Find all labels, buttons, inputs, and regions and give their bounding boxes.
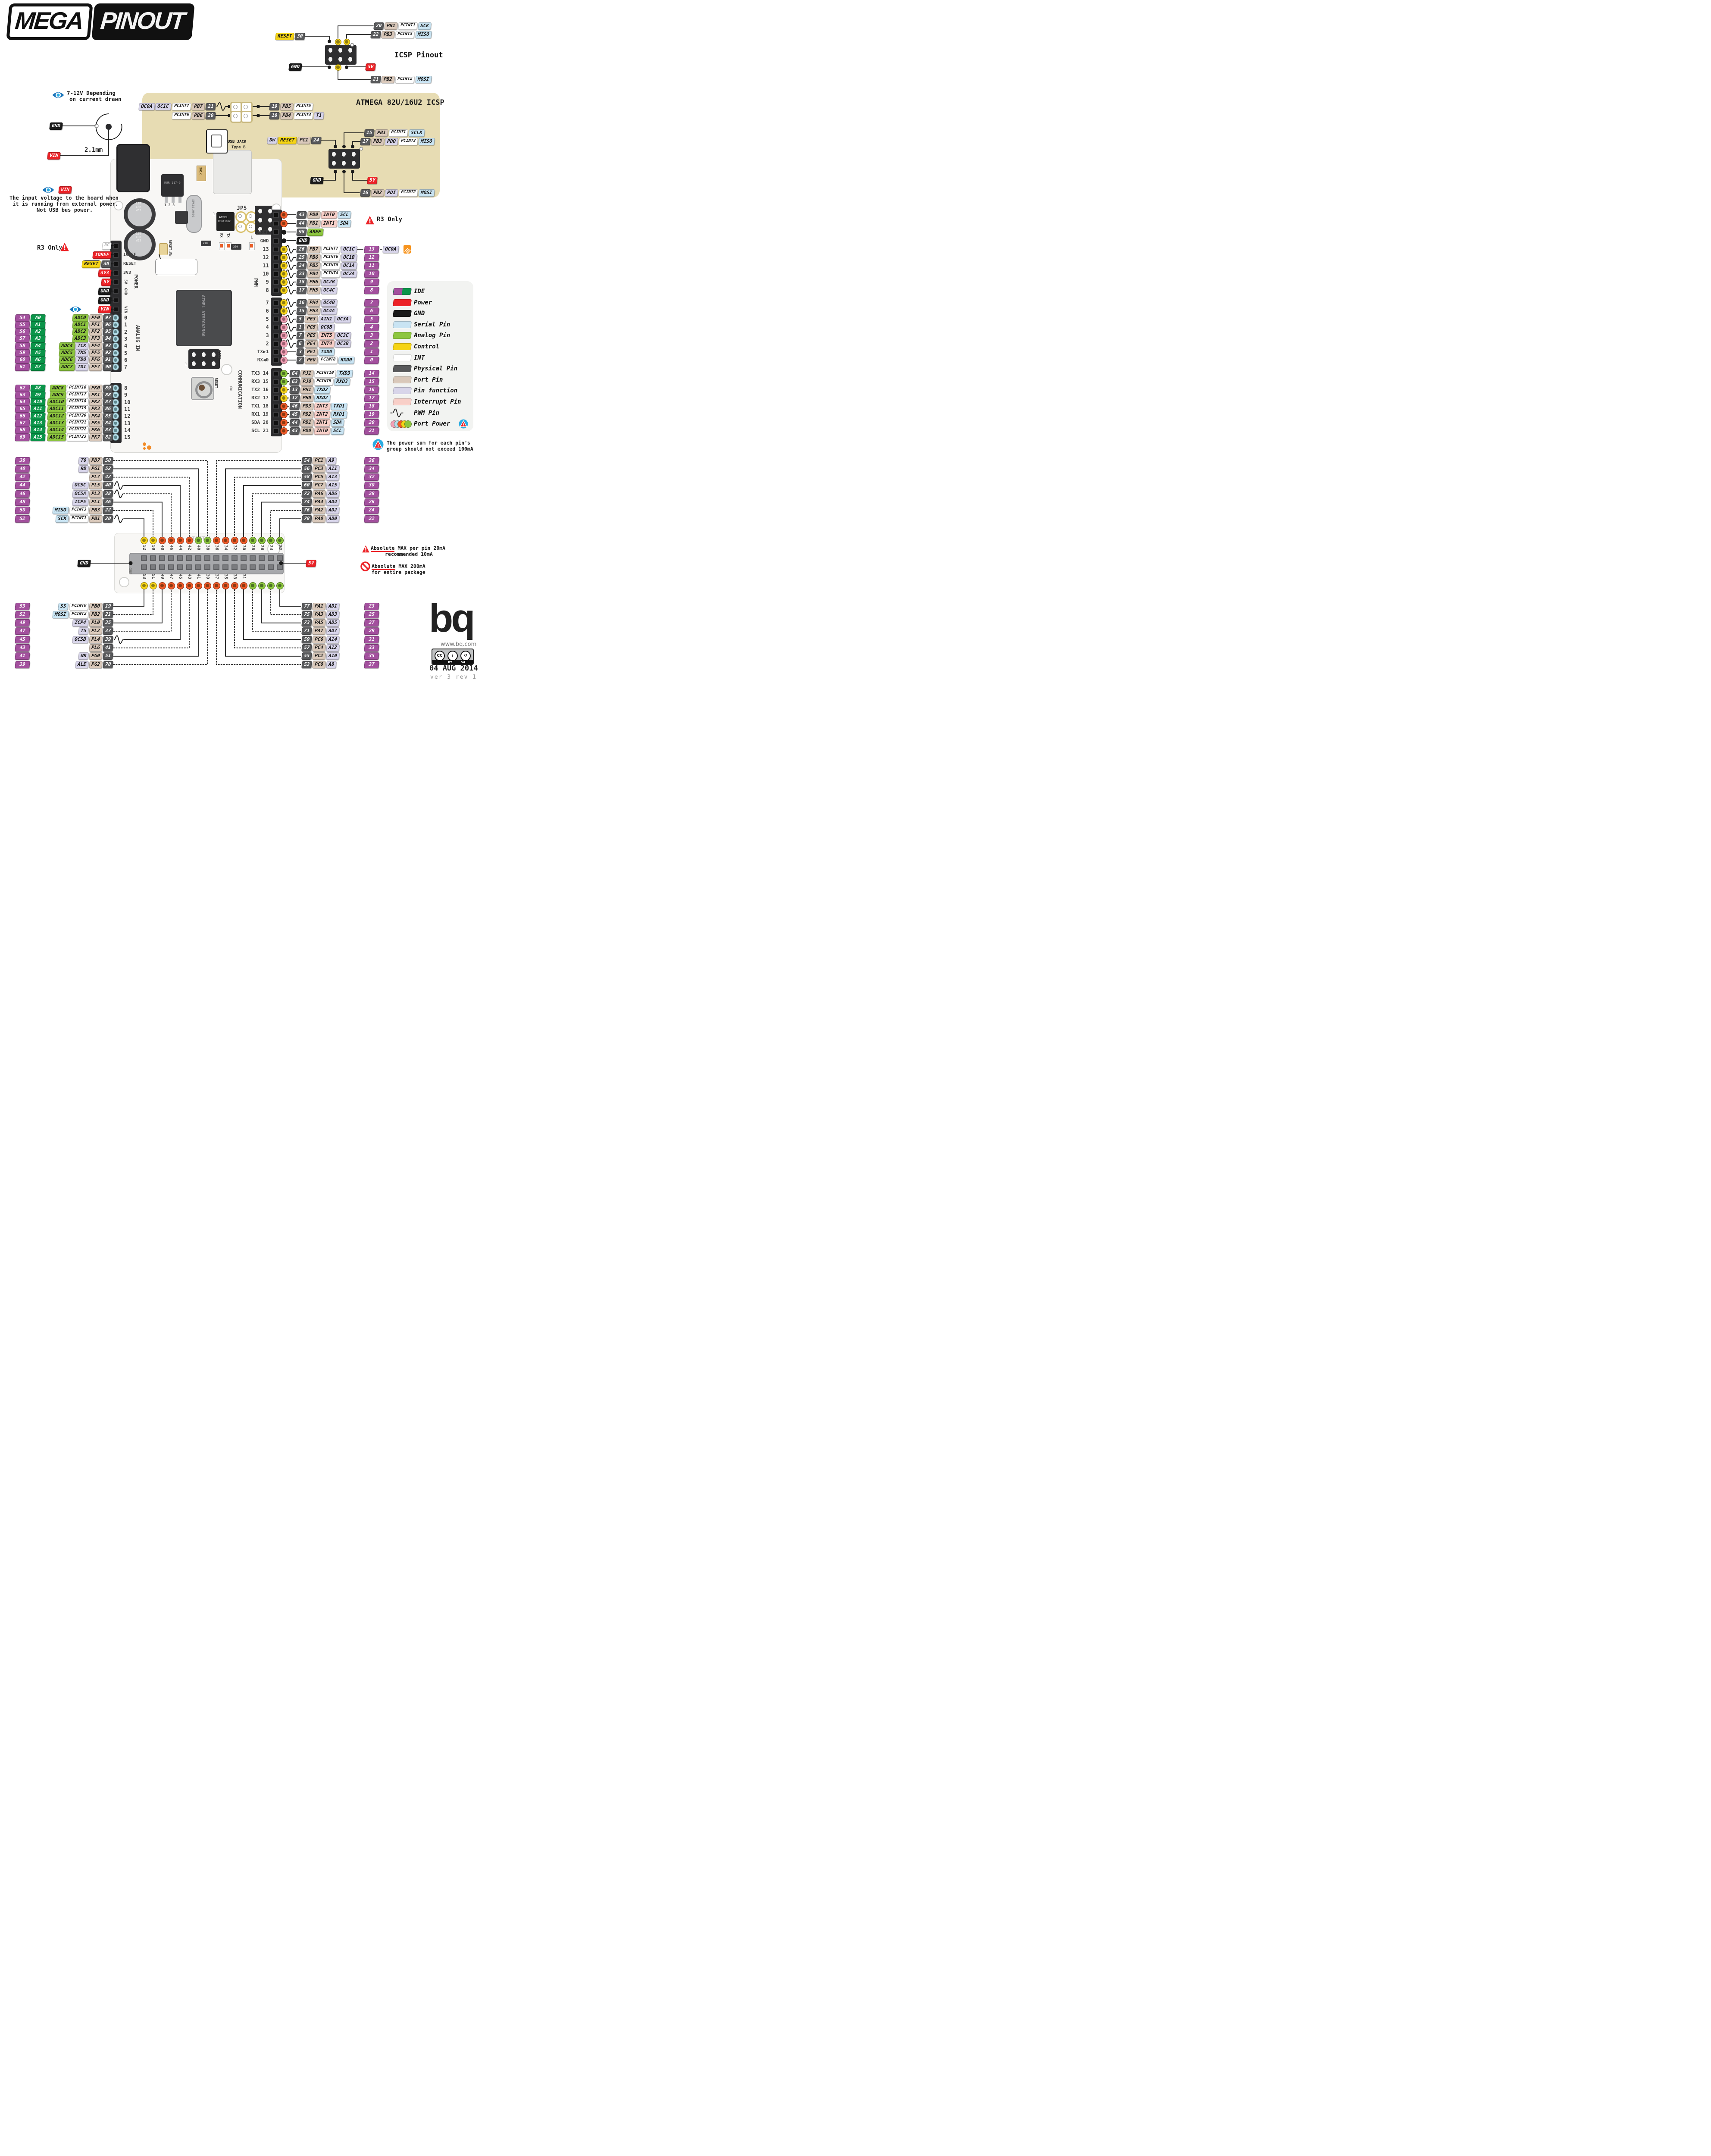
pin-hole-orange xyxy=(240,537,247,544)
chip-pcint4: PCINT4 xyxy=(294,112,313,119)
pin-hole-yellow xyxy=(280,299,288,307)
chip-pb0: PB0 xyxy=(89,603,103,610)
chip-mosi: MOSI xyxy=(52,611,69,618)
chip-5v: 5V xyxy=(367,177,378,184)
pin-hole-core xyxy=(188,584,191,587)
chip-vin: VIN xyxy=(47,152,61,160)
pin-hole-pink xyxy=(280,324,288,331)
chip-a10: A10 xyxy=(30,398,46,406)
ide-number: 53 xyxy=(15,603,30,610)
chip-a2: A2 xyxy=(30,328,46,335)
chip-6: 6 xyxy=(296,340,304,348)
connector-5v-label: 5V xyxy=(306,560,316,567)
ide-number: 18 xyxy=(364,403,379,410)
connector-socket xyxy=(204,555,210,561)
digital-row: 60PC7A15 xyxy=(302,482,339,489)
board-silk: RESET-EN xyxy=(168,240,172,257)
chip-int0: INT0 xyxy=(321,211,337,219)
pin-hole-yellow xyxy=(141,582,148,589)
pin-socket xyxy=(273,412,279,417)
pin-hole-green xyxy=(276,582,284,589)
pin-hole-core xyxy=(114,344,117,348)
chip-pf6: PF6 xyxy=(89,356,103,364)
connector-socket xyxy=(213,564,219,570)
header-pin-hole xyxy=(348,48,352,53)
connector-socket xyxy=(177,564,183,570)
led-core xyxy=(227,244,230,248)
chip-35: 35 xyxy=(364,652,379,660)
pin-socket xyxy=(273,357,279,363)
chip-oc5c: OC5C xyxy=(72,482,88,489)
chip-pc7: PC7 xyxy=(312,482,326,489)
pin-hole-core xyxy=(114,401,117,404)
digital-row: 56PC3A11 xyxy=(302,465,339,473)
chip-gnd: GND xyxy=(296,237,310,244)
chip-pa2: PA2 xyxy=(312,507,326,514)
logo-mega: MEGA xyxy=(6,3,93,40)
chip-56: 56 xyxy=(301,465,312,473)
board-analog-number: 13 xyxy=(124,420,130,426)
digital-row: ALEPG270 xyxy=(75,661,113,668)
chip-1: 1 xyxy=(296,324,304,331)
pin-hole-core xyxy=(197,539,200,542)
ide-number: 30 xyxy=(364,482,379,489)
board-silk: 11 xyxy=(263,263,269,269)
board-silk: 2 xyxy=(266,341,269,347)
pin-hole-core xyxy=(282,222,285,225)
pin-hole-core xyxy=(224,539,227,542)
chip-82: 82 xyxy=(103,434,113,441)
chip-24: 24 xyxy=(311,137,322,144)
cc-license-badge: CC i ↺ BY SA xyxy=(432,649,474,665)
board-silk: RX xyxy=(219,233,223,238)
ide-number: 8 xyxy=(364,287,379,294)
pin-hole-core xyxy=(197,584,200,587)
pin-socket xyxy=(273,317,279,322)
pwm-row: 17PH5OC4C xyxy=(297,287,337,294)
icsp-row-21: 21PB2PCINT2MOSI xyxy=(371,76,431,83)
pin-hole-core xyxy=(336,40,339,43)
chip-pb3: PB3 xyxy=(89,507,103,514)
chip-int3: INT3 xyxy=(314,403,330,410)
analog-ide-pair: 59A5 xyxy=(15,349,45,357)
chip-oc1b: OC1B xyxy=(341,254,357,261)
chip-adc5: ADC5 xyxy=(59,349,75,357)
chip-15: 15 xyxy=(364,129,375,137)
chip-43: 43 xyxy=(296,211,307,219)
jp5-pad-hole xyxy=(238,214,242,218)
chip-wr: WR xyxy=(78,652,89,660)
pin-hole-core xyxy=(278,584,282,587)
board-silk: PWM xyxy=(253,278,259,287)
board-silk: TX1 18 xyxy=(251,403,269,409)
chip-pl2: PL2 xyxy=(89,627,103,635)
icsp-row-20: 20PB1PCINT1SCK xyxy=(374,22,431,30)
chip-71: 71 xyxy=(301,627,312,635)
chip-gnd: GND xyxy=(98,288,112,295)
chip-oc5a: OC5A xyxy=(72,490,88,498)
board-silk: VIN xyxy=(123,306,128,313)
pin-socket xyxy=(273,212,279,218)
chip-oc3a: OC3A xyxy=(335,316,351,323)
pin-socket xyxy=(113,243,119,249)
chip-oc1a: OC1A xyxy=(341,262,357,269)
connector-pin-number: 40 xyxy=(196,545,201,550)
svg-text:!: ! xyxy=(369,217,372,225)
header-pin-hole xyxy=(268,209,272,213)
legend-label-control: Control xyxy=(414,343,439,350)
cc-by-icon: i xyxy=(447,651,458,661)
pin-hole-core xyxy=(151,539,155,542)
digital-row: 58PC5A13 xyxy=(302,473,339,481)
chip-5: 5 xyxy=(296,316,304,323)
pin-hole-green xyxy=(204,537,211,544)
chip-pe5: PE5 xyxy=(304,332,318,339)
board-silk: RX◀0 xyxy=(257,357,269,363)
comm-row: 13PH1TXD2 xyxy=(290,386,330,394)
voltage-regulator xyxy=(161,174,184,197)
pin-hole-pink xyxy=(280,332,288,339)
header-pin-hole xyxy=(268,227,272,232)
chip-a6: A6 xyxy=(30,356,46,364)
chip-20: 20 xyxy=(103,515,113,523)
chip-a12: A12 xyxy=(326,644,340,652)
chip-pl5: PL5 xyxy=(89,482,103,489)
mega-pinout-poster: MEGAPINOUT ICSP Pinout ATMEGA 82U/16U2 I… xyxy=(0,0,484,685)
digital-row: 59PC6A14 xyxy=(302,636,339,643)
chip-ph3: PH3 xyxy=(307,307,321,315)
chip-25: 25 xyxy=(296,254,307,261)
legend-swatch-port xyxy=(393,376,412,383)
connector-pin-number: 44 xyxy=(178,545,183,550)
icsp-row-22: 22PB3PCINT3MISO xyxy=(371,31,431,38)
chip-21: 21 xyxy=(205,103,216,110)
comm-row: 44PD1INT1SDA xyxy=(290,419,344,426)
jp5-pad-hole xyxy=(238,225,242,228)
chip-sck: SCK xyxy=(418,22,432,30)
header-pin-hole xyxy=(192,361,196,366)
atmega-row-pb7: OC0AOC1CPCINT7PB721 xyxy=(139,103,216,110)
pin-hole-yellow xyxy=(335,64,341,71)
chip-29: 29 xyxy=(364,627,379,635)
pin-hole-core xyxy=(282,264,285,267)
pin-hole-core xyxy=(151,584,155,587)
connector-socket xyxy=(186,555,192,561)
chip-pc0: PC0 xyxy=(312,661,326,668)
header-pin-hole xyxy=(348,57,352,62)
pin-hole-core xyxy=(160,539,164,542)
power-sum-note-line2: group should not exceed 100mA xyxy=(387,446,473,452)
pin-hole-core xyxy=(215,584,218,587)
chip-pcint19: PCINT19 xyxy=(66,405,89,413)
chip-pc1: PC1 xyxy=(297,137,311,144)
ide-number: 17 xyxy=(364,395,379,402)
chip-pk3: PK3 xyxy=(89,405,103,413)
digital-row: RDPG152 xyxy=(78,465,113,473)
pin-socket xyxy=(273,271,279,277)
pin-hole-green xyxy=(280,370,288,377)
legend-swatch-func xyxy=(393,387,412,394)
chip-1: 1 xyxy=(364,348,379,356)
connector-socket xyxy=(250,555,256,561)
board-analog-number: 1 xyxy=(124,322,127,328)
chip-32: 32 xyxy=(364,473,379,481)
chip-26: 26 xyxy=(296,246,307,253)
chip-ph1: PH1 xyxy=(300,386,314,394)
chip-ioref: IOREF xyxy=(92,251,112,259)
ide-number: 47 xyxy=(15,627,30,635)
analog-row: ADC10PCINT18PK287 xyxy=(47,398,113,406)
ide-number: 12 xyxy=(364,254,379,261)
chip-94: 94 xyxy=(103,335,113,342)
svg-text:!: ! xyxy=(377,443,379,448)
chip-41: 41 xyxy=(103,644,113,652)
bq-logo: bq xyxy=(429,596,473,641)
connector-pin-number: 38 xyxy=(205,545,210,550)
header-pin-hole xyxy=(338,48,342,53)
chip-16: 16 xyxy=(364,386,379,394)
chip-pa5: PA5 xyxy=(312,619,326,627)
pin-hole-core xyxy=(282,404,285,408)
chip-42: 42 xyxy=(15,473,30,481)
chip-ad1: AD1 xyxy=(326,603,340,610)
chip-pb4: PB4 xyxy=(307,270,321,278)
board-silk: RESET xyxy=(214,378,218,388)
chip-pcint16: PCINT16 xyxy=(66,385,89,392)
pin-socket xyxy=(273,247,279,252)
ide-number: 28 xyxy=(364,490,379,498)
pin-hole-core xyxy=(114,386,117,390)
chip-pb1: PB1 xyxy=(384,22,398,30)
usb-jack-label: USB JACK xyxy=(228,140,246,144)
chip-pl4: PL4 xyxy=(89,636,103,643)
chip-39: 39 xyxy=(15,661,30,668)
pin-hole-core xyxy=(282,421,285,424)
atmega-row-pb5: 19PB5PCINT5 xyxy=(269,103,313,110)
chip-45: 45 xyxy=(15,636,30,643)
chip-a0: A0 xyxy=(30,314,46,322)
chip-adc6: ADC6 xyxy=(59,356,75,364)
pin-hole-core xyxy=(233,539,236,542)
pwm-row: 26PB7PCINT7OC1C xyxy=(297,246,357,253)
chip-a4: A4 xyxy=(30,342,46,350)
board-silk: GND xyxy=(123,288,128,295)
legend-label-phys: Physical Pin xyxy=(414,365,457,372)
pin-hole-core xyxy=(283,231,285,233)
jack-note-line1: 7-12V Depending xyxy=(67,90,116,96)
chip-75: 75 xyxy=(301,611,312,618)
svg-text:!: ! xyxy=(365,547,367,553)
mouse-bite-dot xyxy=(143,447,146,450)
pin-hole-core xyxy=(233,584,236,587)
chip-pg2: PG2 xyxy=(89,661,103,668)
legend-label-intp: Interrupt Pin xyxy=(414,398,461,405)
connector-pin-number: 33 xyxy=(232,574,237,579)
pin-hole-orange xyxy=(177,582,184,589)
chip-95: 95 xyxy=(103,328,113,335)
connector-socket xyxy=(241,555,247,561)
chip-21: 21 xyxy=(364,427,379,435)
icsp-reset: RESET30 xyxy=(275,33,305,40)
pin-hole-core xyxy=(206,539,209,542)
board-silk: 5V xyxy=(278,544,282,549)
legend-swatch-analog xyxy=(393,332,412,339)
chip-22: 22 xyxy=(364,515,379,523)
chip-85: 85 xyxy=(103,413,113,420)
legend-swatch-serial xyxy=(393,321,412,328)
legend-swatch-control xyxy=(393,343,412,350)
header-pin-hole xyxy=(192,352,196,357)
board-silk: GND xyxy=(128,567,132,574)
pin-hole-core xyxy=(282,342,285,345)
regulator-leg xyxy=(165,197,168,203)
connector-socket xyxy=(177,555,183,561)
chip-txd0: TXD0 xyxy=(318,348,335,356)
board-silk: 12 xyxy=(263,254,269,260)
chip-38: 38 xyxy=(103,490,113,498)
ide-number: 4 xyxy=(364,324,379,331)
pin-socket xyxy=(113,279,119,285)
chip-63: 63 xyxy=(289,378,300,385)
chip-a14: A14 xyxy=(326,636,340,643)
chip-20: 20 xyxy=(364,419,379,426)
chip-pc2: PC2 xyxy=(312,652,326,660)
chip-a3: A3 xyxy=(30,335,46,342)
ide-number: 37 xyxy=(364,661,379,668)
analog-ide-pair: 55A1 xyxy=(15,321,45,329)
chip-sclk: SCLK xyxy=(409,129,425,137)
digital-row: OC5APL338 xyxy=(72,490,113,498)
chip-60: 60 xyxy=(301,482,312,489)
digital-row: PL641 xyxy=(89,644,113,652)
connector-pin-number: 37 xyxy=(214,574,219,579)
connector-socket xyxy=(268,564,274,570)
pin-socket xyxy=(273,308,279,314)
pin-hole-core xyxy=(114,429,117,432)
chip-41: 41 xyxy=(15,652,30,660)
board-analog-number: 8 xyxy=(124,385,127,391)
pin-hole-orange xyxy=(231,582,238,589)
chip-oc3c: OC3C xyxy=(335,332,351,339)
chip-51: 51 xyxy=(15,611,30,618)
pin-hole-yellow xyxy=(280,395,288,402)
connector-pin-number: 48 xyxy=(160,545,165,550)
chip-txd1: TXD1 xyxy=(331,403,347,410)
connector-socket xyxy=(231,555,238,561)
chip-a8: A8 xyxy=(30,385,46,392)
board-silk: ICSP xyxy=(217,350,221,360)
chip-sda: SDA xyxy=(338,220,351,227)
chip-a9: A9 xyxy=(326,457,337,464)
chip-pa3: PA3 xyxy=(312,611,326,618)
chip-pa1: PA1 xyxy=(312,603,326,610)
chip-pl0: PL0 xyxy=(89,619,103,627)
chip-11: 11 xyxy=(364,262,379,269)
digital-row: 75PA3AD3 xyxy=(302,611,339,618)
chip-62: 62 xyxy=(15,385,30,392)
chip-gnd: GND xyxy=(310,177,324,184)
chip-adc13: ADC13 xyxy=(47,420,66,427)
chip-pc4: PC4 xyxy=(312,644,326,652)
chip-pb4: PB4 xyxy=(280,112,294,119)
chip-34: 34 xyxy=(364,465,379,473)
board-analog-number: 15 xyxy=(124,434,130,440)
ide-number: 14 xyxy=(364,370,379,377)
connector-pin-number: 35 xyxy=(223,574,228,579)
chip-icp5: ICP5 xyxy=(72,498,88,506)
chip-pcint3: PCINT3 xyxy=(69,507,89,514)
pin-hole-green xyxy=(249,537,256,544)
chip-pb3: PB3 xyxy=(381,31,395,38)
chip-74: 74 xyxy=(301,498,312,506)
header-pin-hole xyxy=(332,152,336,157)
comm-row: 12PH0RXD2 xyxy=(290,395,330,402)
connector-pin-number: 43 xyxy=(187,574,192,579)
abs-max-pin-note-line2: recommended 10mA xyxy=(385,551,433,557)
atmega-row-pb1: 15PB1PCINT1SCLK xyxy=(364,129,425,137)
chip-pd1: PD1 xyxy=(307,220,321,227)
chip-pk7: PK7 xyxy=(89,434,103,441)
chip-a1: A1 xyxy=(30,321,46,329)
analog-ide-pair: 63A9 xyxy=(15,392,45,399)
pin-hole-core xyxy=(160,584,164,587)
analog-row: ADC5TMSPF592 xyxy=(59,349,113,357)
pin-socket xyxy=(273,255,279,260)
pin-hole-green xyxy=(280,378,288,385)
chip-rxd1: RXD1 xyxy=(331,411,347,418)
board-silk: 7 xyxy=(266,300,269,306)
chip-87: 87 xyxy=(103,398,113,406)
board-silk: JP5 xyxy=(237,205,247,212)
pin-hole-yellow xyxy=(141,537,148,544)
chip-59: 59 xyxy=(301,636,312,643)
pin-hole-green xyxy=(267,582,275,589)
chip-a11: A11 xyxy=(30,405,46,413)
analog-ide-pair: 69A15 xyxy=(15,434,45,441)
digital-row: 76PA2AD2 xyxy=(302,507,339,514)
chip-rxd3: RXD3 xyxy=(334,378,350,385)
comm-row: 46PD3INT3TXD1 xyxy=(290,403,347,410)
chip-pb2: PB2 xyxy=(89,611,103,618)
pin-hole-orange xyxy=(204,582,211,589)
analog-ide-pair: 68A14 xyxy=(15,426,45,434)
ide-number: 10 xyxy=(364,270,379,278)
chip-adc1: ADC1 xyxy=(72,321,88,329)
chip-pk6: PK6 xyxy=(89,426,103,434)
digital-row: 57PC4A12 xyxy=(302,644,339,652)
board-silk: L xyxy=(250,235,253,240)
pin-hole-orange xyxy=(280,419,288,426)
chip-oc0a: OC0A xyxy=(138,103,155,110)
chip-pk2: PK2 xyxy=(89,398,103,406)
legend-label-pwm: PWM Pin xyxy=(414,410,439,417)
board-analog-number: 12 xyxy=(124,413,130,419)
pin-hole-black xyxy=(282,238,286,243)
chip-18: 18 xyxy=(296,279,307,286)
chip-19: 19 xyxy=(103,603,113,610)
chip-pcint2: PCINT2 xyxy=(398,189,418,197)
header-pin-hole xyxy=(258,218,262,222)
chip-adc12: ADC12 xyxy=(47,413,66,420)
pin-hole-core xyxy=(114,436,117,439)
chip-13: 13 xyxy=(289,386,300,394)
pwm-row: 1PG5OC0B xyxy=(297,324,334,331)
chip-50: 50 xyxy=(103,457,113,464)
header-pin-hole xyxy=(342,152,346,157)
pin-hole-yellow xyxy=(280,270,288,278)
pin-hole-core xyxy=(215,539,218,542)
mouse-bite-dot xyxy=(143,442,146,446)
